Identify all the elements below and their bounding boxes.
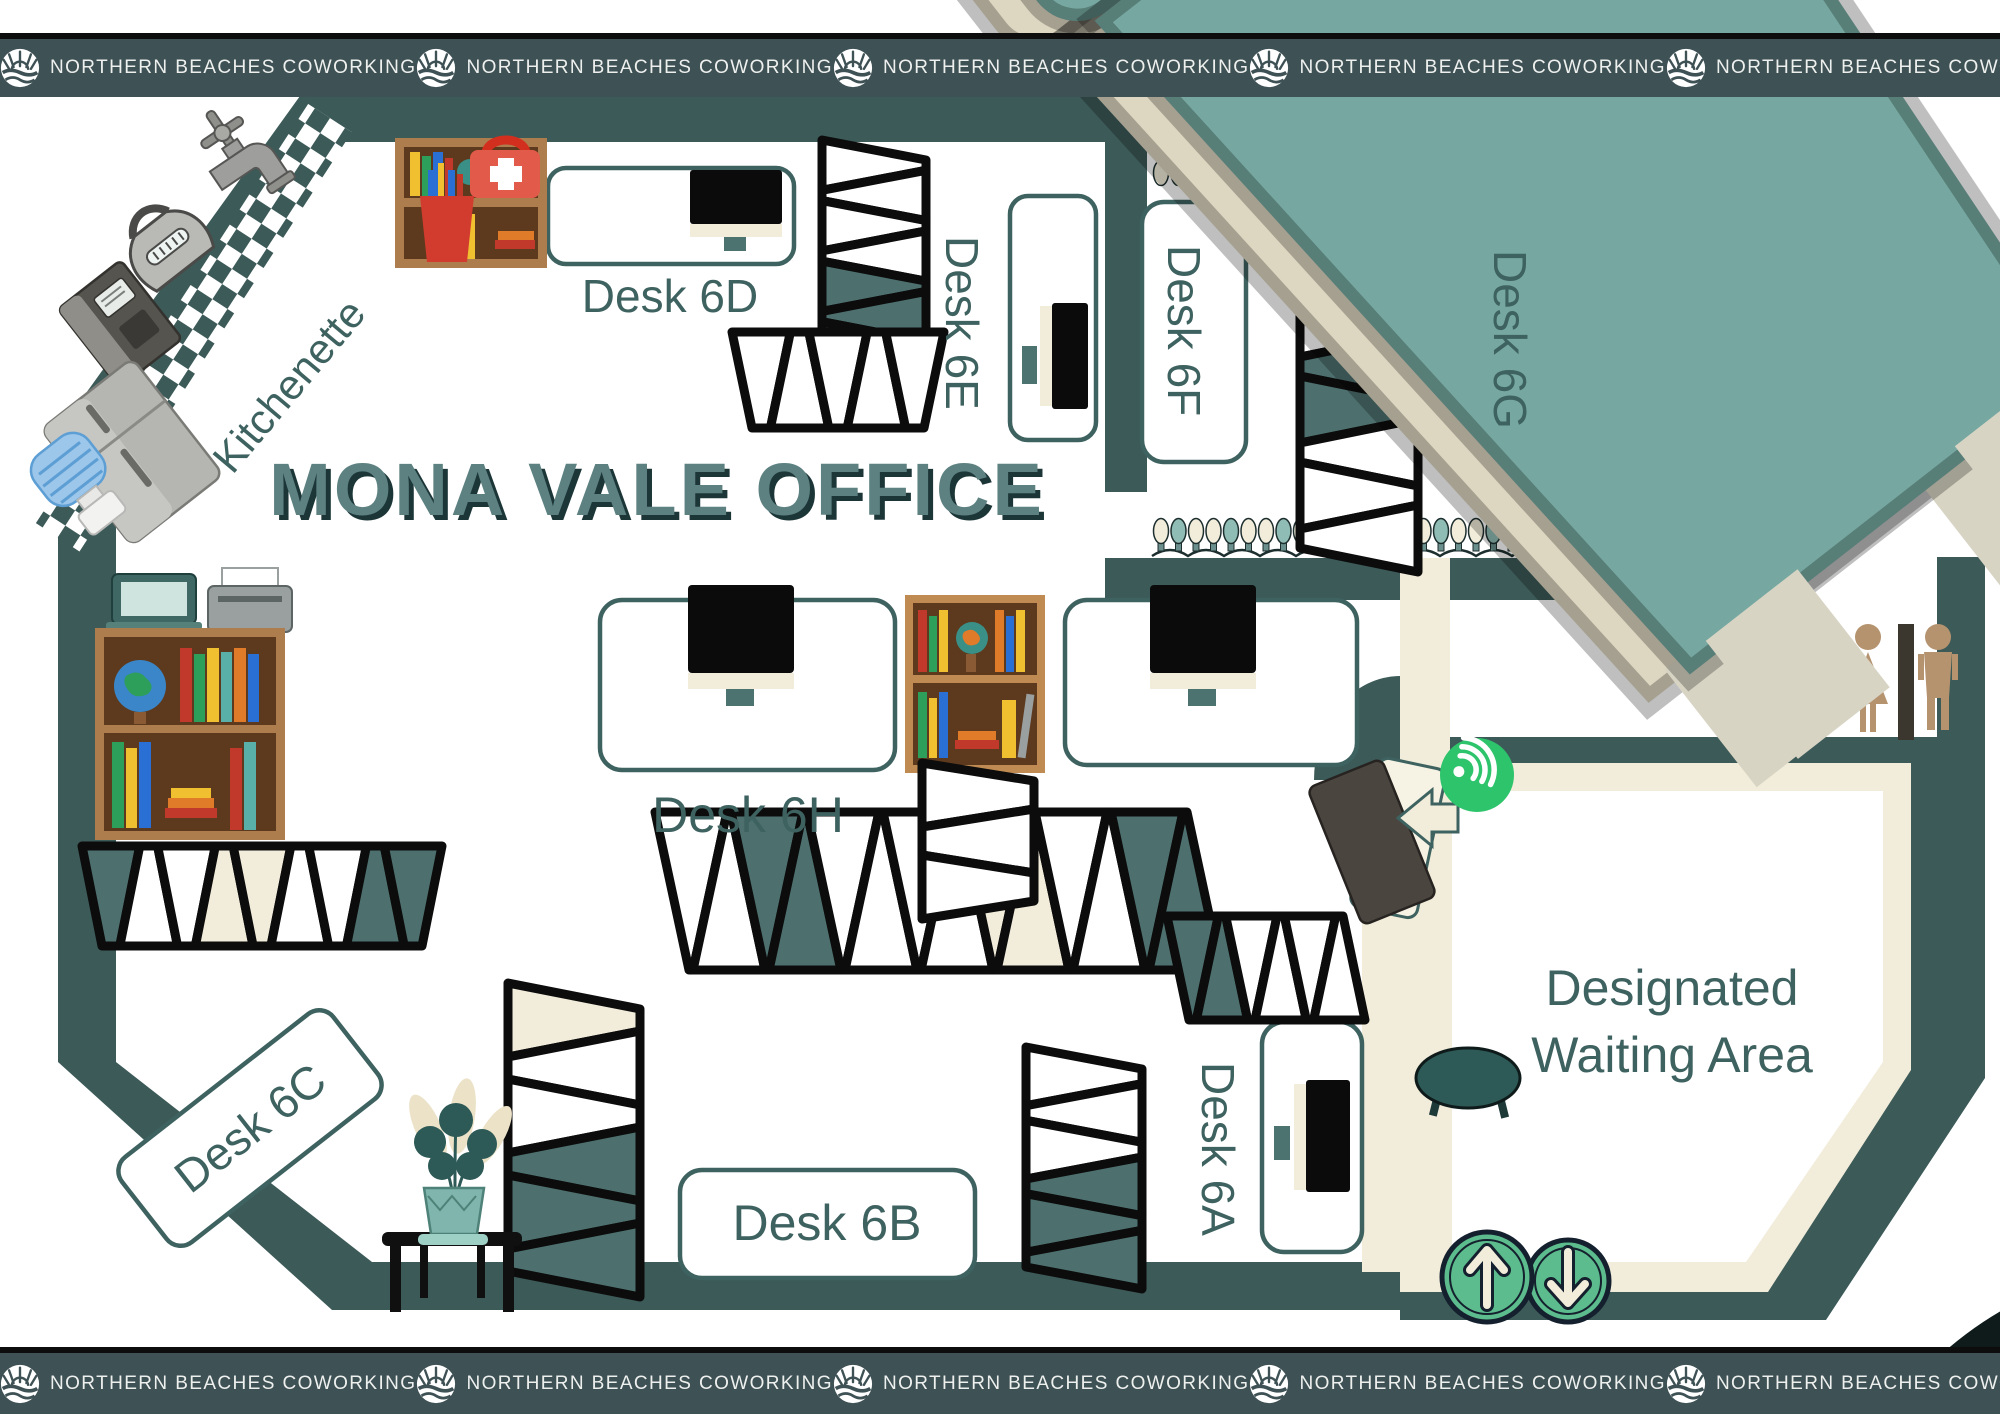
room-divider	[82, 846, 442, 946]
floor-plan: MONA VALE OFFICE MONA VALE OFFICE Kitche…	[0, 0, 2000, 1414]
arrow-down-circle-icon	[1527, 1240, 1609, 1322]
desk-6e-label: Desk 6E	[936, 236, 988, 410]
room-divider	[922, 763, 1034, 919]
brand-item: NORTHERN BEACHES COWORKING	[1666, 48, 2000, 88]
desk-center	[1065, 585, 1357, 765]
left-bookshelf	[95, 568, 292, 840]
supplies-shelf	[395, 138, 547, 268]
corridor-upper	[1400, 558, 1450, 792]
room-divider	[732, 332, 944, 428]
printer	[208, 568, 292, 632]
desk-6h	[600, 585, 895, 770]
brand-name: NORTHERN BEACHES COWORKING	[1716, 57, 2000, 79]
sunrise-waves-logo-icon	[1249, 1364, 1289, 1404]
desk-6h-label: Desk 6H	[652, 787, 844, 843]
imac-computer	[1150, 585, 1256, 706]
desk-6a-label: Desk 6A	[1192, 1062, 1244, 1236]
brand-item: NORTHERN BEACHES COWORKING	[0, 1364, 416, 1404]
center-bookshelf	[905, 595, 1045, 773]
brand-name: NORTHERN BEACHES COWORKING	[466, 1373, 832, 1395]
page-title: MONA VALE OFFICE	[269, 448, 1045, 531]
brand-name: NORTHERN BEACHES COWORKING	[50, 57, 416, 79]
waiting-area-label-line2: Waiting Area	[1531, 1027, 1813, 1083]
room-divider	[508, 983, 640, 1297]
plant	[401, 1077, 519, 1245]
brand-item: NORTHERN BEACHES COWORKING	[833, 1364, 1249, 1404]
desk-6d-label: Desk 6D	[582, 270, 758, 322]
sunrise-waves-logo-icon	[1666, 48, 1706, 88]
desk-6d	[548, 168, 794, 264]
brand-item: NORTHERN BEACHES COWORKING	[416, 48, 832, 88]
brand-name: NORTHERN BEACHES COWORKING	[883, 57, 1249, 79]
brand-item: NORTHERN BEACHES COWORKING	[1249, 48, 1665, 88]
desk-6b-label: Desk 6B	[733, 1195, 922, 1251]
top-brand-banner: NORTHERN BEACHES COWORKINGNORTHERN BEACH…	[0, 33, 2000, 97]
desk-6a	[1262, 1022, 1362, 1252]
sunrise-waves-logo-icon	[0, 1364, 40, 1404]
brand-name: NORTHERN BEACHES COWORKING	[1716, 1373, 2000, 1395]
arrow-up-circle-icon	[1442, 1232, 1532, 1322]
brand-item: NORTHERN BEACHES COWORKING	[416, 1364, 832, 1404]
brand-item: NORTHERN BEACHES COWORKING	[0, 48, 416, 88]
imac-computer	[688, 585, 794, 706]
room-divider	[1026, 1047, 1142, 1289]
brand-name: NORTHERN BEACHES COWORKING	[466, 57, 832, 79]
sunrise-waves-logo-icon	[833, 1364, 873, 1404]
sunrise-waves-logo-icon	[1666, 1364, 1706, 1404]
laptop	[106, 574, 202, 630]
brand-name: NORTHERN BEACHES COWORKING	[50, 1373, 416, 1395]
brand-item: NORTHERN BEACHES COWORKING	[1666, 1364, 2000, 1404]
sunrise-waves-logo-icon	[833, 48, 873, 88]
sunrise-waves-logo-icon	[0, 48, 40, 88]
brand-name: NORTHERN BEACHES COWORKING	[1299, 1373, 1665, 1395]
brand-name: NORTHERN BEACHES COWORKING	[1299, 57, 1665, 79]
waiting-area-label-line1: Designated	[1546, 960, 1799, 1016]
sunrise-waves-logo-icon	[416, 48, 456, 88]
brand-item: NORTHERN BEACHES COWORKING	[1249, 1364, 1665, 1404]
sunrise-waves-logo-icon	[416, 1364, 456, 1404]
sunrise-waves-logo-icon	[1249, 48, 1289, 88]
coffee-table	[1416, 1048, 1520, 1119]
desk-6g-label: Desk 6G	[1484, 250, 1536, 429]
bottom-brand-banner: NORTHERN BEACHES COWORKINGNORTHERN BEACH…	[0, 1347, 2000, 1414]
desk-6e	[1010, 196, 1096, 440]
room-divider	[1167, 916, 1365, 1020]
brand-item: NORTHERN BEACHES COWORKING	[833, 48, 1249, 88]
brand-name: NORTHERN BEACHES COWORKING	[883, 1373, 1249, 1395]
desk-6f-label: Desk 6F	[1158, 245, 1210, 416]
